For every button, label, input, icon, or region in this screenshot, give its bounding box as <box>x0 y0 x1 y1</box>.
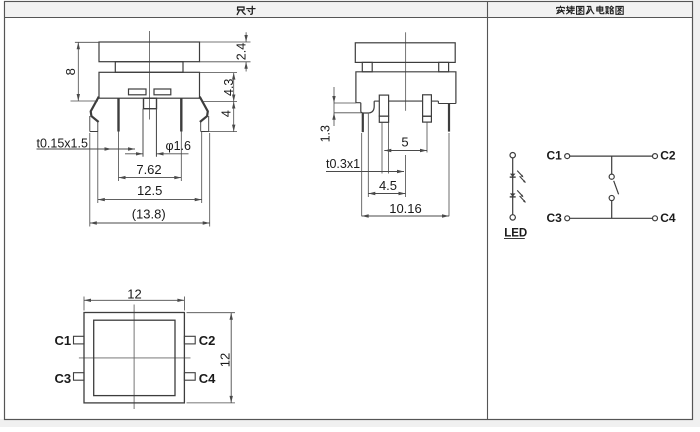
svg-text:C4: C4 <box>199 371 216 386</box>
svg-text:C2: C2 <box>660 149 676 163</box>
svg-text:7.62: 7.62 <box>136 162 161 177</box>
svg-text:LED: LED <box>504 228 527 240</box>
svg-text:t0.15x1.5: t0.15x1.5 <box>37 136 88 150</box>
svg-text:1.3: 1.3 <box>319 125 333 142</box>
svg-text:4.5: 4.5 <box>379 178 397 193</box>
svg-text:5: 5 <box>401 135 408 150</box>
svg-text:12: 12 <box>217 353 232 367</box>
svg-text:C4: C4 <box>660 211 676 225</box>
svg-text:C1: C1 <box>55 333 72 348</box>
svg-text:10.16: 10.16 <box>389 201 422 216</box>
svg-text:t0.3x1: t0.3x1 <box>326 157 360 171</box>
svg-text:C2: C2 <box>199 333 216 348</box>
svg-text:(13.8): (13.8) <box>132 206 166 221</box>
svg-text:C3: C3 <box>546 211 562 225</box>
svg-text:C1: C1 <box>546 149 562 163</box>
svg-text:8: 8 <box>63 68 78 75</box>
svg-text:2.4: 2.4 <box>234 43 248 60</box>
svg-text:12: 12 <box>127 286 141 301</box>
svg-text:φ1.6: φ1.6 <box>166 139 192 153</box>
svg-text:4: 4 <box>220 110 234 117</box>
svg-text:12.5: 12.5 <box>137 183 162 198</box>
svg-text:C3: C3 <box>55 371 72 386</box>
svg-text:4.3: 4.3 <box>222 79 236 96</box>
